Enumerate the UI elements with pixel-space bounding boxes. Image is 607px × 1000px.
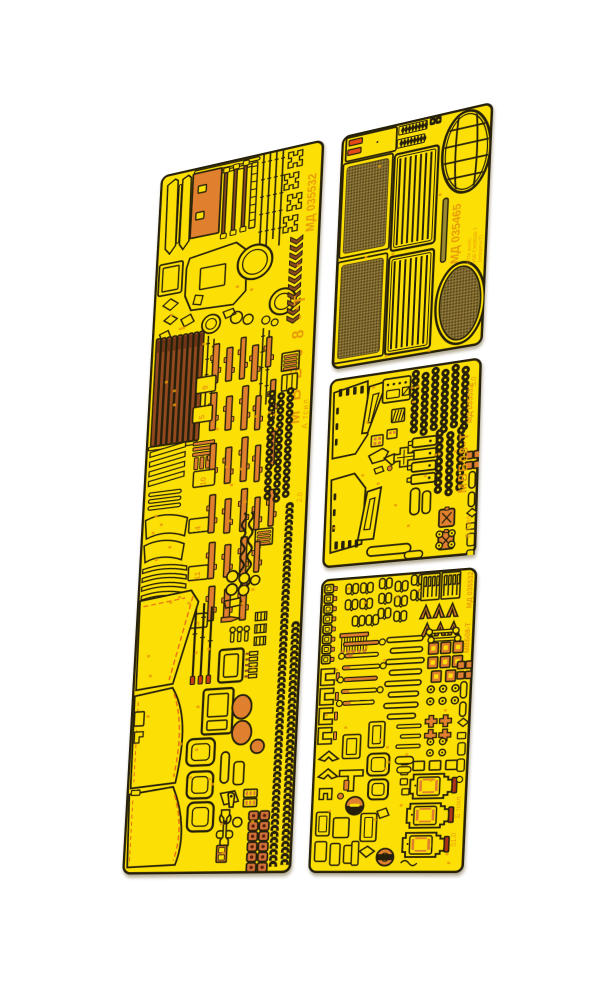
svg-text:51.0: 51.0 (450, 832, 458, 846)
svg-text:А тсил: А тсил (299, 398, 310, 430)
svg-text:МД 035532: МД 035532 (304, 172, 320, 233)
svg-text:3: 3 (192, 621, 202, 626)
svg-text:МД 035532: МД 035532 (466, 383, 475, 423)
svg-text:В тсил: В тсил (465, 515, 474, 538)
svg-text:Б тсил: Б тсил (454, 796, 463, 818)
svg-text:10: 10 (198, 476, 208, 486)
svg-text:11: 11 (192, 571, 202, 580)
svg-text:МВБ08-Т: МВБ08-Т (463, 622, 472, 653)
svg-text:МВБ08-Т: МВБ08-Т (457, 431, 471, 494)
svg-text:2.0: 2.0 (296, 491, 304, 502)
